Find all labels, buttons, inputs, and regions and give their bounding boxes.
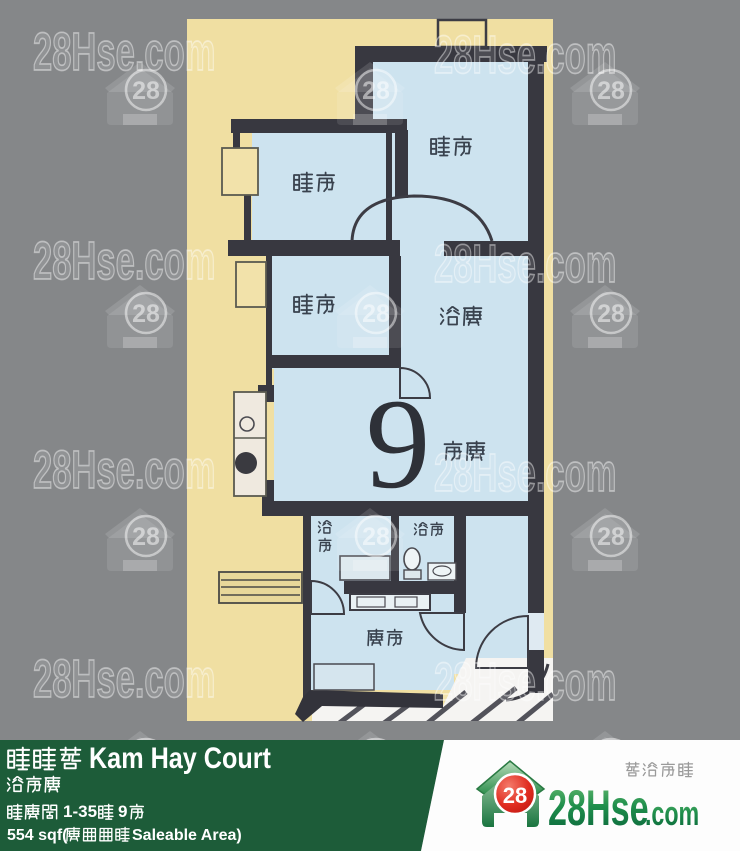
svg-text:1-35: 1-35 (63, 802, 97, 821)
svg-text:28Hse: 28Hse (548, 781, 649, 837)
svg-text:28: 28 (503, 783, 527, 808)
svg-text:Kam Hay Court: Kam Hay Court (89, 741, 271, 775)
svg-text:28Hse.com: 28Hse.com (434, 651, 616, 712)
svg-text:9: 9 (118, 802, 127, 821)
svg-text:28Hse.com: 28Hse.com (33, 648, 215, 709)
svg-text:28Hse.com: 28Hse.com (434, 233, 616, 294)
svg-text:554 sqf(: 554 sqf( (7, 827, 68, 844)
svg-text:Saleable Area): Saleable Area) (132, 827, 242, 844)
svg-text:28Hse.com: 28Hse.com (33, 230, 215, 291)
svg-text:28Hse.com: 28Hse.com (33, 439, 215, 500)
svg-text:28Hse.com: 28Hse.com (33, 21, 215, 82)
svg-text:28Hse.com: 28Hse.com (434, 442, 616, 503)
svg-text:.com: .com (645, 796, 699, 833)
svg-text:9: 9 (366, 372, 431, 515)
